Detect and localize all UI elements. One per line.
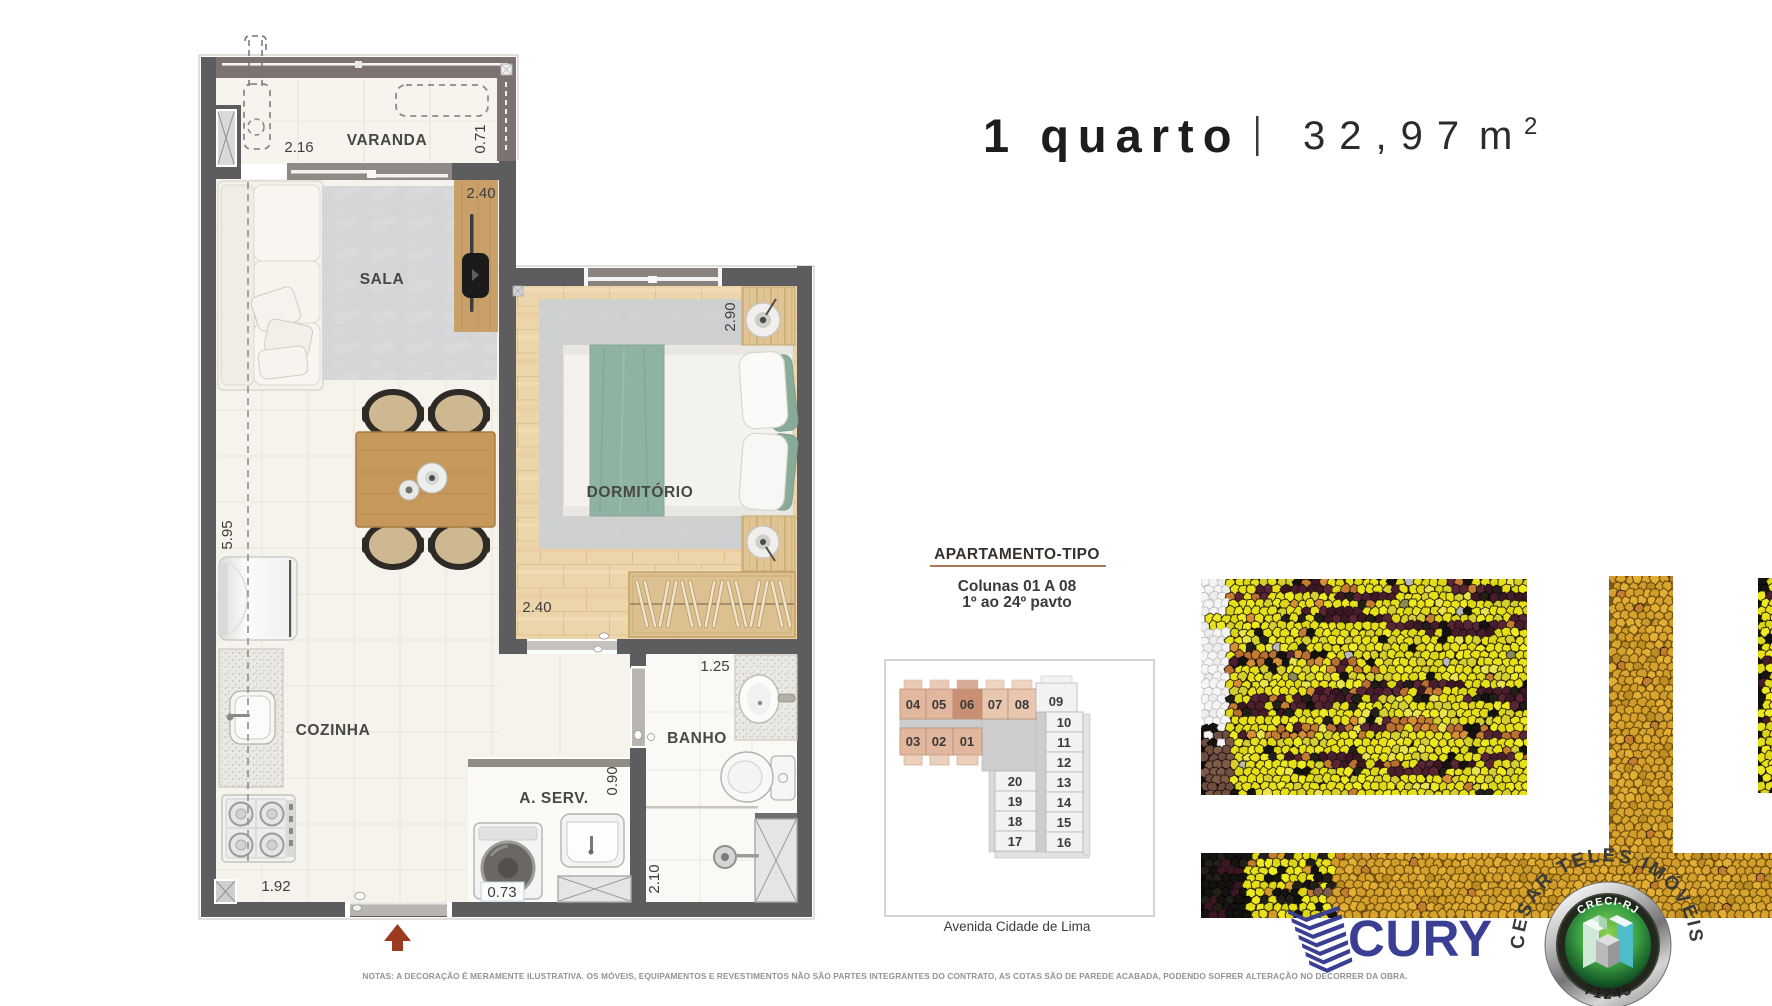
svg-text:SALA: SALA	[360, 271, 405, 288]
svg-text:m: m	[1479, 114, 1512, 158]
svg-text:BANHO: BANHO	[667, 730, 727, 747]
svg-text:1.92: 1.92	[261, 878, 290, 895]
svg-text:13: 13	[1057, 775, 1071, 790]
svg-text:0.90: 0.90	[604, 766, 621, 795]
svg-text:09: 09	[1049, 694, 1063, 709]
svg-text:2.90: 2.90	[722, 302, 739, 331]
svg-text:20: 20	[1008, 774, 1022, 789]
svg-text:5.95: 5.95	[219, 520, 236, 549]
svg-text:12: 12	[1057, 755, 1071, 770]
svg-text:CURY: CURY	[1348, 910, 1493, 967]
svg-text:03: 03	[906, 734, 920, 749]
svg-text:2: 2	[1524, 113, 1537, 140]
svg-text:07: 07	[988, 697, 1002, 712]
svg-text:15: 15	[1057, 815, 1071, 830]
svg-text:NOTAS: A DECORAÇÃO É MERAMENTE: NOTAS: A DECORAÇÃO É MERAMENTE ILUSTRATI…	[362, 970, 1407, 981]
svg-text:VARANDA: VARANDA	[347, 132, 428, 149]
svg-text:17: 17	[1008, 834, 1022, 849]
svg-text:19: 19	[1008, 794, 1022, 809]
svg-text:14: 14	[1057, 795, 1072, 810]
svg-text:2.40: 2.40	[466, 185, 495, 202]
svg-text:06: 06	[960, 697, 974, 712]
svg-text:2.16: 2.16	[284, 139, 313, 156]
svg-text:COZINHA: COZINHA	[296, 722, 371, 739]
svg-text:02: 02	[932, 734, 946, 749]
svg-text:APARTAMENTO-TIPO: APARTAMENTO-TIPO	[934, 546, 1100, 563]
svg-text:0.73: 0.73	[487, 884, 516, 901]
svg-text:04: 04	[906, 697, 921, 712]
svg-text:A. SERV.: A. SERV.	[519, 790, 588, 807]
svg-text:1.25: 1.25	[700, 658, 729, 675]
svg-text:0.71: 0.71	[472, 124, 489, 153]
svg-text:2.40: 2.40	[522, 599, 551, 616]
svg-text:05: 05	[932, 697, 946, 712]
svg-text:18: 18	[1008, 814, 1022, 829]
svg-text:16: 16	[1057, 835, 1071, 850]
svg-text:2.10: 2.10	[646, 864, 663, 893]
svg-text:1 quarto: 1 quarto	[983, 109, 1240, 162]
svg-text:32,97: 32,97	[1303, 114, 1473, 158]
svg-text:DORMITÓRIO: DORMITÓRIO	[587, 483, 694, 501]
svg-text:11: 11	[1057, 735, 1071, 750]
svg-text:Avenida Cidade de Lima: Avenida Cidade de Lima	[944, 919, 1091, 934]
svg-text:Colunas 01 A 08: Colunas 01 A 08	[958, 578, 1077, 595]
svg-text:1º ao 24º pavto: 1º ao 24º pavto	[962, 594, 1072, 611]
svg-text:10: 10	[1057, 715, 1071, 730]
svg-text:08: 08	[1015, 697, 1029, 712]
svg-text:01: 01	[960, 734, 974, 749]
